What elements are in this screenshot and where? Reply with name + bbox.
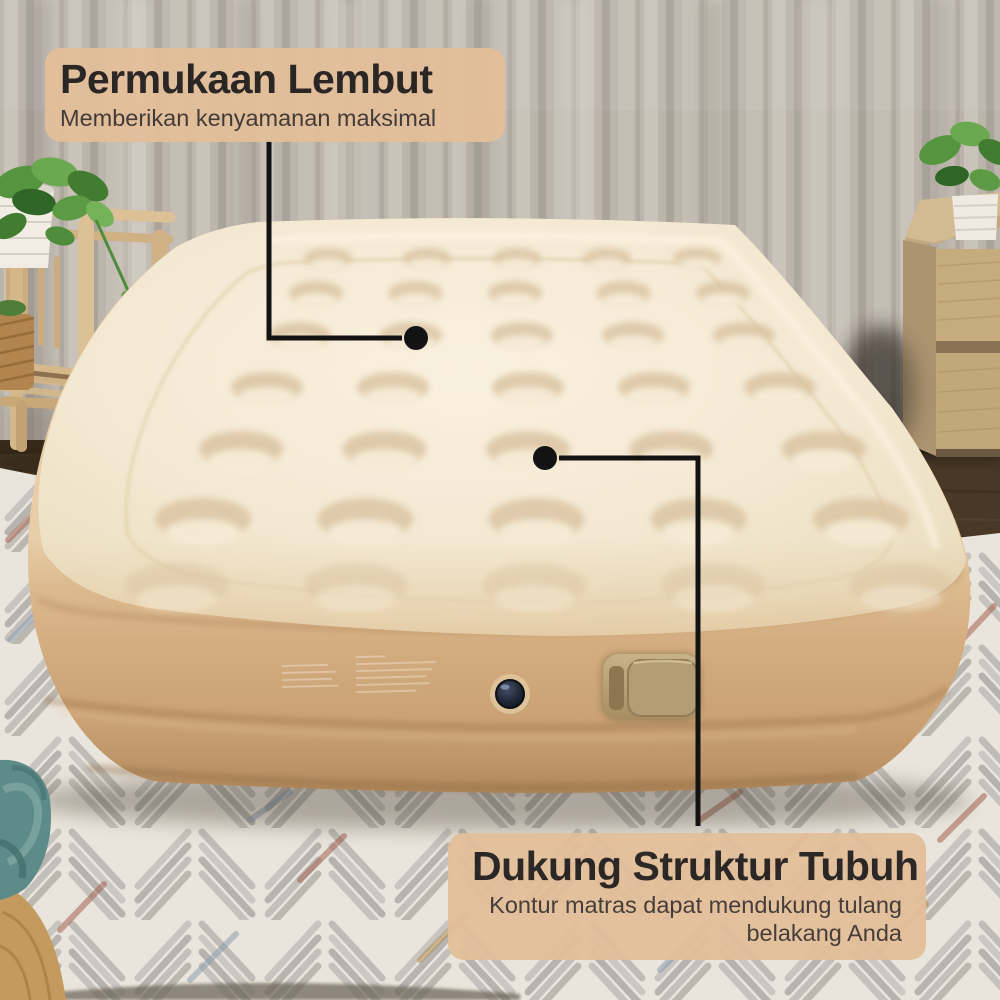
mattress-dimple-highlight — [860, 585, 941, 611]
mattress-dimple-highlight — [500, 387, 556, 405]
mattress-dimple-highlight — [602, 293, 644, 307]
mattress-dimple-highlight — [328, 519, 403, 544]
mattress-dimple-highlight — [494, 293, 536, 307]
product-infographic: Permukaan Lembut Memberikan kenyamanan m… — [0, 0, 1000, 1000]
mattress-dimple-highlight — [136, 585, 217, 611]
callout-soft-subtitle: Memberikan kenyamanan maksimal — [60, 105, 490, 133]
mattress-dimple-highlight — [609, 335, 657, 351]
mattress-dimple-highlight — [295, 293, 337, 307]
mattress-dimple-highlight — [315, 585, 396, 611]
mattress-dimple-highlight — [309, 258, 346, 270]
mattress-dimple-highlight — [791, 449, 857, 471]
mattress-dimple-highlight — [498, 258, 535, 270]
mattress-dimple-highlight — [166, 519, 241, 544]
mattress-dimple-highlight — [673, 585, 754, 611]
mattress-dimple-highlight — [702, 293, 744, 307]
mattress-dimple-highlight — [499, 519, 574, 544]
air-valve — [490, 674, 530, 714]
mattress-dimple-highlight — [720, 335, 768, 351]
mattress-dimple-highlight — [365, 387, 421, 405]
callout-support-subtitle: Kontur matras dapat mendukung tulang bel… — [472, 892, 902, 947]
callout-dot-soft — [404, 326, 428, 350]
callout-support-title: Dukung Struktur Tubuh — [472, 844, 902, 889]
nightstand-drawers — [936, 249, 1000, 457]
mattress-dimple-highlight — [494, 585, 575, 611]
mattress-dimple-highlight — [239, 387, 295, 405]
mattress-dimple-highlight — [626, 387, 682, 405]
mattress-dimple-highlight — [408, 258, 445, 270]
callout-dot-support — [533, 446, 557, 470]
mattress-dimple-highlight — [352, 449, 418, 471]
mattress-dimple-highlight — [498, 335, 546, 351]
mattress-dimple-highlight — [678, 258, 715, 270]
mattress-dimple-highlight — [752, 387, 808, 405]
callout-body-support: Dukung Struktur Tubuh Kontur matras dapa… — [448, 833, 926, 960]
built-in-pump — [601, 653, 701, 721]
mattress-dimple-highlight — [824, 519, 899, 544]
callout-soft-surface: Permukaan Lembut Memberikan kenyamanan m… — [45, 48, 505, 142]
mattress-dimple-highlight — [588, 258, 625, 270]
mattress-dimple-highlight — [394, 293, 436, 307]
mattress-dimple-highlight — [208, 449, 274, 471]
callout-soft-title: Permukaan Lembut — [60, 57, 490, 102]
